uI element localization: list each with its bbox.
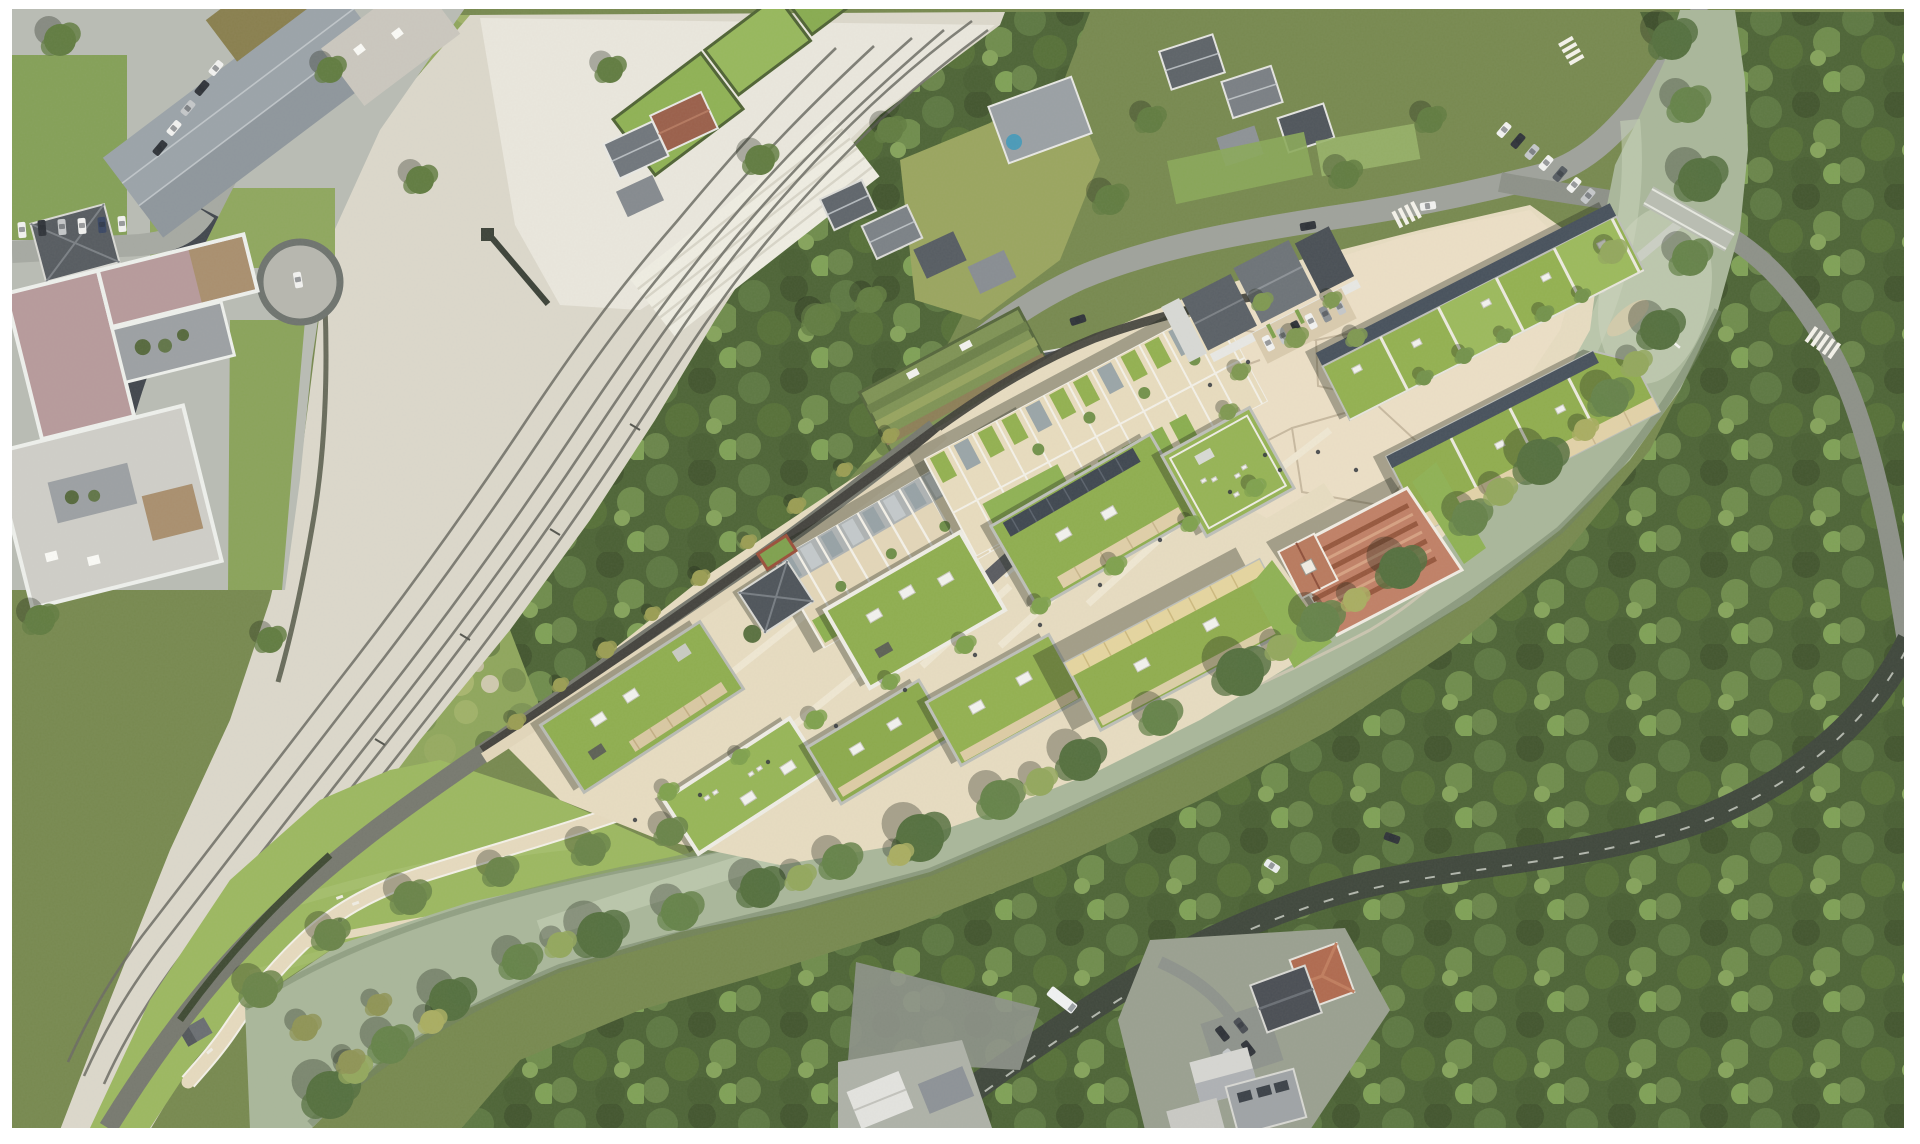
scene-canvas: [0, 0, 1920, 1144]
photo-grain: [0, 0, 1920, 1144]
aerial-masterplan-rendering: [0, 0, 1920, 1144]
